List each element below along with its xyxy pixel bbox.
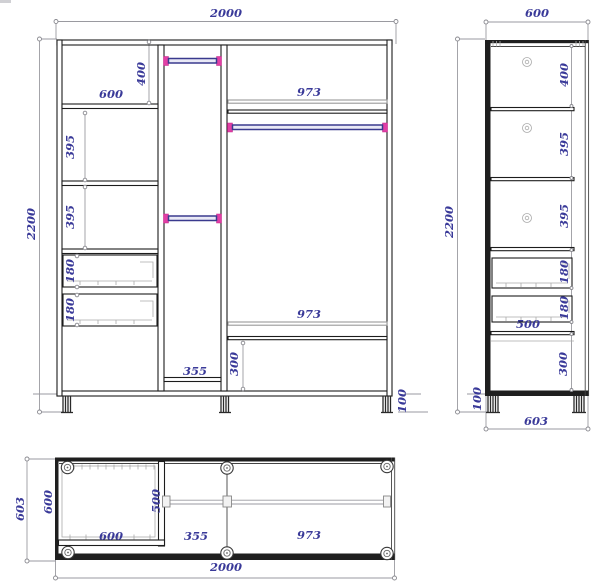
front-labels: 2000 2200 600 400 395 395 180 180 355 97… [24,6,409,413]
front-right-column [228,100,388,340]
dim-right-shelf-bottom: 973 [297,307,321,321]
side-back-panel [485,40,491,396]
front-middle-column [164,57,222,382]
shelf-gray [228,100,387,103]
dim-side-drawer-2: 180 [557,296,571,320]
dim-side-section-1: 400 [557,63,571,87]
dim-shelf-section-2: 395 [63,205,77,229]
dim-front-height: 2200 [24,208,38,241]
hanging-rod [228,123,388,132]
side-cam-fittings [523,58,532,223]
dim-top-inner-depth: 600 [41,490,55,514]
top-back-wall [55,458,395,462]
top-view: 603 600 600 500 355 973 2000 [13,457,397,580]
shelf [228,110,387,113]
shelf [62,249,158,254]
leg-top-view [221,462,233,474]
shelf [491,332,574,335]
leg [572,396,586,413]
leg-top-view [62,546,74,558]
shelf [491,108,574,111]
hanging-rod [164,57,222,66]
wardrobe-drawing: 2000 2200 600 400 395 395 180 180 355 97… [0,0,600,581]
side-labels: 600 2200 400 395 395 180 180 500 300 100… [442,6,571,428]
dim-top-compartment-height: 400 [134,62,148,86]
dim-shelf-section-1: 395 [63,135,77,159]
rod-bar [233,125,383,130]
shelf [62,181,158,186]
dim-side-drawer-depth: 500 [516,317,540,331]
dim-top-compartment-width: 600 [99,87,123,101]
leg-top-view [61,461,73,473]
front-bottom-panel [57,391,392,396]
dim-side-depth: 600 [525,6,549,20]
dim-top-width: 2000 [209,560,242,574]
dim-side-height: 2200 [442,206,456,239]
blueprint-canvas: 2000 2200 600 400 395 395 180 180 355 97… [0,0,600,581]
dim-drawer-2: 180 [63,298,77,322]
dim-side-base-depth: 603 [524,414,548,428]
dim-front-width: 2000 [209,6,242,20]
front-left-panel [57,40,62,396]
dim-top-right-width: 973 [297,528,321,542]
shelf [62,104,158,109]
hanging-rod [164,214,222,223]
scan-artifact [0,0,11,3]
rod-mount [223,496,232,507]
dim-top-middle-width: 355 [184,529,208,543]
dim-side-section-2: 395 [557,132,571,156]
drawer-front [63,255,157,287]
front-view: 2000 2200 600 400 395 395 180 180 355 97… [24,6,428,414]
shelf [228,337,387,340]
dim-drawer-1: 180 [63,259,77,283]
side-top-panel [485,40,589,43]
dim-leg-height: 100 [395,389,409,413]
dim-top-depth: 603 [13,497,27,521]
dim-side-drawer-1: 180 [557,260,571,284]
leg [486,396,500,413]
dim-middle-column-width: 355 [183,364,207,378]
front-divider-left [158,45,164,391]
leg-top-view [381,547,393,559]
dim-right-shelf-top: 973 [297,85,321,99]
leg [61,396,73,413]
front-legs [61,396,393,413]
shelf [491,248,574,251]
dim-side-leg: 100 [470,387,484,411]
leg-top-view [381,460,393,472]
drawer-2 [63,294,157,326]
rod-bar [169,59,217,64]
leg [219,396,231,413]
top-rod [163,496,391,507]
drawer-1 [63,255,157,287]
shelf-gray [228,322,387,325]
drawer-front [63,294,157,326]
front-divider-right [221,45,227,391]
side-bottom-panel [485,391,589,397]
dim-top-rod: 500 [149,489,163,513]
front-right-panel [387,40,392,396]
side-view: 600 2200 400 395 395 180 180 500 300 100… [442,6,590,431]
side-carcass [485,40,589,396]
rod-bar [169,216,217,221]
dim-bottom-compartment: 300 [227,352,241,376]
front-top-panel [57,40,392,45]
leg-top-view [221,547,233,559]
shelf [491,178,574,181]
leg [381,396,393,413]
box-inner-line [62,466,155,537]
dim-side-section-3: 395 [557,204,571,228]
dim-side-bottom: 300 [556,352,570,376]
shelf [164,378,221,382]
dim-top-left-width: 600 [99,529,123,543]
rod-mount [384,496,391,507]
rod-mount [163,496,171,507]
side-legs [486,396,586,413]
